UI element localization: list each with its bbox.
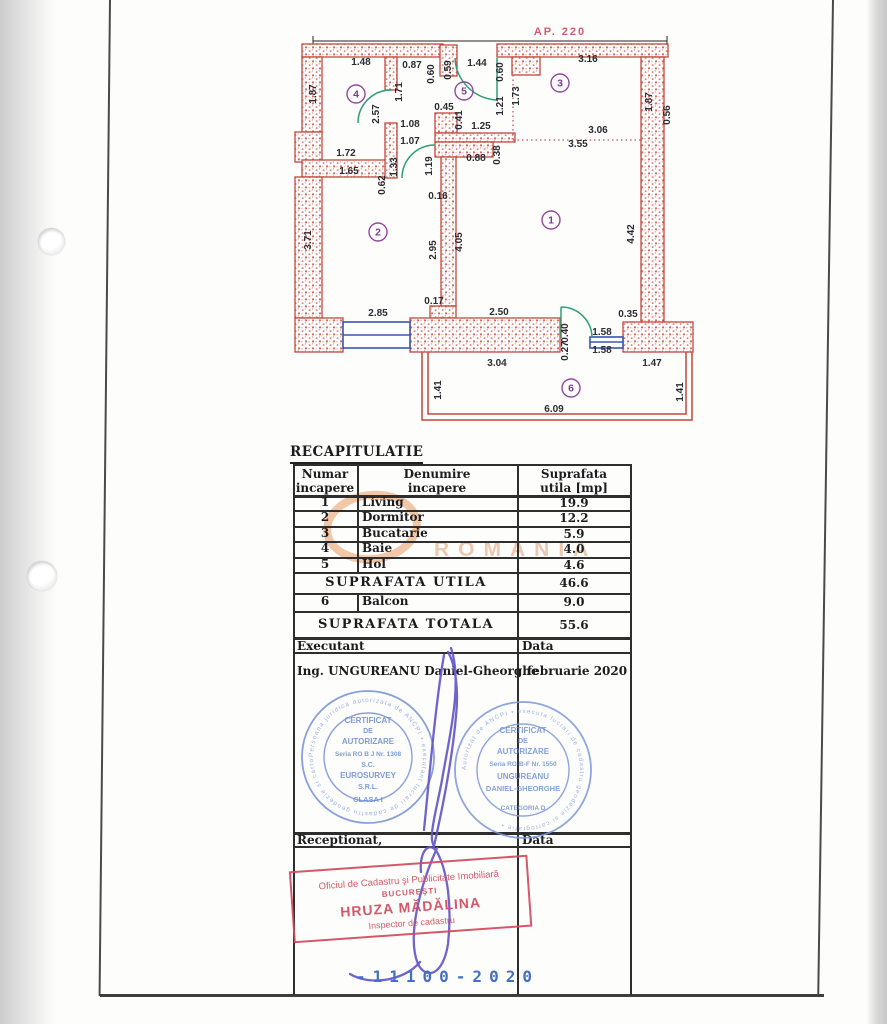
row-num: 4 xyxy=(321,542,329,556)
dimension-label: 1.25 xyxy=(471,121,491,132)
row-val: 5.9 xyxy=(564,528,585,542)
room-circle xyxy=(562,379,580,397)
room-number-circles: 123456 xyxy=(347,74,580,397)
executant-data-label: Data xyxy=(522,640,554,654)
scanned-page: ROMANIA RECAPITULATIE Numar incapere Den… xyxy=(0,0,887,1024)
balcony-outline-inner xyxy=(428,352,686,414)
suprafata-utila-label: SUPRAFATA UTILA xyxy=(325,576,487,591)
dimension-label: 1.58 xyxy=(592,345,612,356)
dimension-label: 4.05 xyxy=(454,232,465,252)
walls xyxy=(295,44,693,352)
stamp2-categoria: CATEGORIA D xyxy=(501,805,546,812)
dimension-label: 1.19 xyxy=(424,156,435,176)
page-border-left xyxy=(99,0,111,996)
dimension-label: 1.33 xyxy=(389,157,400,177)
dimension-label: 1.58 xyxy=(592,327,612,338)
door-arc-entrance xyxy=(455,58,497,100)
stamp1-line: CERTIFICAT xyxy=(345,716,392,725)
table-divider-nr xyxy=(357,464,359,572)
dimension-label: 0.38 xyxy=(492,145,503,165)
dimension-label: 1.87 xyxy=(308,84,319,104)
room-circle xyxy=(347,85,365,103)
room-number: 3 xyxy=(557,78,563,90)
dimension-label: 1.41 xyxy=(675,382,686,402)
window-bedroom xyxy=(343,322,410,348)
stamp1-line: EUROSURVEY xyxy=(340,771,397,780)
dimension-labels: 1.480.870.600.591.440.603.161.872.571.71… xyxy=(303,54,686,415)
balcony-outline xyxy=(422,352,692,420)
dimension-label: 0.60 xyxy=(495,62,506,82)
table-divider-nr xyxy=(357,593,359,611)
scan-edge-right xyxy=(866,0,887,1024)
room-circle xyxy=(455,82,473,100)
dimension-label: 1.73 xyxy=(511,86,522,106)
room-number: 4 xyxy=(353,89,359,101)
row-val: 4.6 xyxy=(564,559,585,573)
dimension-label: 1.47 xyxy=(642,358,662,369)
row-name: Hol xyxy=(362,558,386,572)
dimension-label: 0.45 xyxy=(434,102,454,113)
stamp2-line: CERTIFICAT xyxy=(500,726,547,735)
svg-text:Autorizat de ANCPI • executa l: Autorizat de ANCPI • executa lucrari de … xyxy=(461,708,585,832)
room-number: 5 xyxy=(461,86,467,98)
dimension-label: 1.65 xyxy=(339,166,359,177)
stamp2-line: DE xyxy=(518,738,528,745)
room-number: 2 xyxy=(375,227,381,239)
red-stamp-line1: Oficiul de Cadastru şi Publicitate Imobi… xyxy=(318,869,500,893)
round-stamp-eurosurvey: Persoana juridica autorizata de ANCPI • … xyxy=(0,0,434,823)
row-num: 2 xyxy=(321,511,329,525)
table-border-right xyxy=(630,464,632,995)
balcon-num: 6 xyxy=(321,595,329,609)
dimension-label: 1.71 xyxy=(394,82,405,102)
dimension-label: 0.88 xyxy=(466,153,486,164)
dimension-label: 3.71 xyxy=(303,230,314,250)
recap-header-suprafata: Suprafata utila [mp] xyxy=(540,468,608,496)
row-val: 4.0 xyxy=(564,543,585,557)
stamp1-ring-text: Persoana juridica autorizata de ANCPI • … xyxy=(0,0,428,817)
page-border-bottom xyxy=(100,994,824,997)
dimension-label: 3.55 xyxy=(568,139,588,150)
stamp2-line: AUTORIZARE xyxy=(497,747,550,756)
table-divider-data xyxy=(517,464,519,995)
executant-date: februarie 2020 xyxy=(527,665,627,679)
row-val: 12.2 xyxy=(559,512,588,526)
stamp1-line: AUTORIZARE xyxy=(342,737,395,746)
dimension-label: 0.17 xyxy=(424,296,444,307)
row-name: Dormitor xyxy=(362,511,424,525)
round-stamp-ungureanu: Autorizat de ANCPI • executa lucrari de … xyxy=(455,702,591,838)
dimension-label: 1.41 xyxy=(433,380,444,400)
door-arc-balcony xyxy=(561,307,592,338)
recap-header-numar: Numar incapere xyxy=(296,468,354,496)
svg-text:Persoana juridica autorizata d: Persoana juridica autorizata de ANCPI • … xyxy=(0,0,428,817)
suprafata-totala-value: 55.6 xyxy=(559,619,588,633)
dimension-label: 2.57 xyxy=(371,104,382,124)
apartment-label: AP. 220 xyxy=(534,26,586,38)
dimension-label: 1.44 xyxy=(467,58,487,69)
dimension-label: 1.72 xyxy=(336,148,356,159)
dimension-label: 1.08 xyxy=(400,119,420,130)
dimension-label: 1.87 xyxy=(644,92,655,112)
recap-header-denumire: Denumire incapere xyxy=(404,468,471,496)
stamp2-ring-text: Autorizat de ANCPI • executa lucrari de … xyxy=(461,708,585,832)
hole-punch-top xyxy=(38,228,65,255)
stamp1-line: CLASA I xyxy=(353,795,383,804)
dimension-label: 1.48 xyxy=(351,57,371,68)
red-stamp-line2: BUCUREŞTI xyxy=(382,886,438,899)
dimension-label: 0.56 xyxy=(662,105,673,125)
row-val: 19.9 xyxy=(559,497,588,511)
executant-label: Executant xyxy=(297,640,365,654)
signature xyxy=(350,648,457,980)
dimension-label: 3.06 xyxy=(588,125,608,136)
dimension-label: 4.42 xyxy=(626,224,637,244)
row-name: Bucatarie xyxy=(362,527,428,541)
dimension-label: 0.59 xyxy=(443,60,454,80)
dimension-label: 0.35 xyxy=(618,309,638,320)
stamp1-line: DE xyxy=(363,728,373,735)
recap-title: RECAPITULATIE xyxy=(290,445,423,464)
plan-and-stamps-layer: AP. 220 xyxy=(0,0,887,1024)
table-line xyxy=(293,464,632,466)
room-circle xyxy=(551,74,569,92)
room-circle xyxy=(369,223,387,241)
row-num: 1 xyxy=(321,496,329,510)
stamp2-line: UNGUREANU xyxy=(497,772,549,781)
dimension-label: 2.85 xyxy=(368,308,388,319)
registration-number: -11100-2020 xyxy=(356,967,539,986)
dimension-label: 0.40 xyxy=(560,323,571,343)
stamp1-line: Seria RO B J Nr. 1308 xyxy=(335,751,402,758)
dimension-label: 0.87 xyxy=(402,60,422,71)
row-num: 5 xyxy=(321,558,329,572)
door-arc-hol xyxy=(402,145,435,178)
dimension-label: 0.16 xyxy=(428,191,448,202)
receptionat-data-label: Data xyxy=(522,834,554,848)
dimension-label: 0.60 xyxy=(426,64,437,84)
hole-punch-bottom xyxy=(27,561,57,591)
red-stamp-ocpi: Oficiul de Cadastru şi Publicitate Imobi… xyxy=(290,856,531,942)
dimension-label: 3.16 xyxy=(578,54,598,65)
dimension-label: 1.21 xyxy=(495,96,506,116)
suprafata-utila-value: 46.6 xyxy=(559,577,588,591)
receptionat-label: Receptionat, xyxy=(297,834,382,848)
dimension-label: 3.04 xyxy=(487,358,507,369)
dimension-label: 0.27 xyxy=(560,341,571,361)
room-number: 6 xyxy=(568,383,574,395)
room-number: 1 xyxy=(548,215,554,227)
row-name: Living xyxy=(362,496,404,510)
window-balcony xyxy=(590,337,623,348)
stamp1-line: S.C. xyxy=(361,762,375,769)
watermark: ROMANIA xyxy=(0,0,887,1024)
table-line xyxy=(293,611,632,613)
dimension-label: 2.95 xyxy=(428,240,439,260)
balcon-val: 9.0 xyxy=(564,596,585,610)
dimension-label: 2.50 xyxy=(489,307,509,318)
door-arc-baie xyxy=(358,90,391,123)
table-border-left xyxy=(293,464,295,995)
dimension-label: 0.41 xyxy=(454,110,465,130)
stamp2-line: DANIEL-GHEORGHE xyxy=(486,784,560,793)
red-stamp-line4: Inspector de cadastru xyxy=(368,915,455,931)
row-name: Baie xyxy=(362,542,392,556)
dimension-label: 1.07 xyxy=(400,136,420,147)
balcon-name: Balcon xyxy=(362,595,409,609)
scan-edge-left xyxy=(0,0,58,1024)
red-stamp-line3: HRUZA MĂDĂLINA xyxy=(340,894,482,920)
room-circle xyxy=(542,211,560,229)
page-border-right xyxy=(817,0,834,996)
floor-plan: AP. 220 xyxy=(295,26,693,420)
dimension-label: 6.09 xyxy=(544,404,564,415)
executant-name: Ing. UNGUREANU Daniel-Gheorghe xyxy=(297,665,539,679)
dimension-label: 0.62 xyxy=(377,175,388,195)
stamp2-line: Seria RO-B-F Nr. 1550 xyxy=(489,761,557,768)
stamp1-line: S.R.L. xyxy=(358,784,378,791)
row-num: 3 xyxy=(321,527,329,541)
suprafata-totala-label: SUPRAFATA TOTALA xyxy=(318,618,494,633)
